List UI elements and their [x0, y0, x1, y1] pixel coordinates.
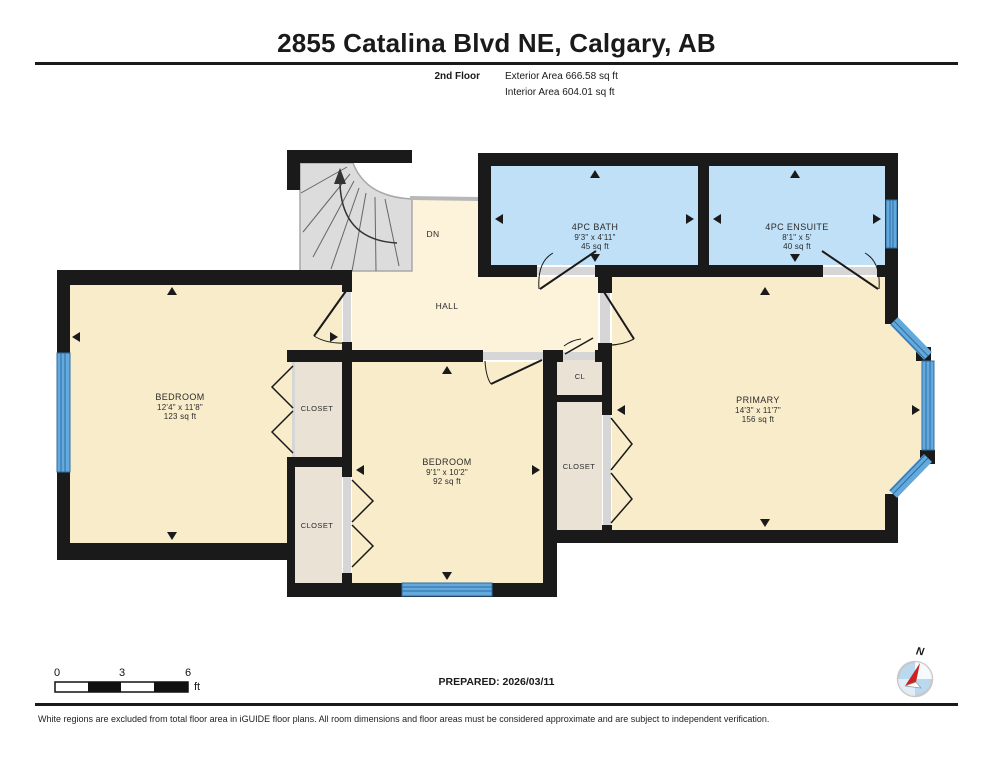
- disclaimer-text: White regions are excluded from total fl…: [38, 714, 958, 724]
- floor-plan-drawing: [0, 0, 993, 768]
- compass-north-label: N: [915, 646, 925, 659]
- bedroom-mid-label: BEDROOM 9'1" x 10'2" 92 sq ft: [422, 457, 471, 487]
- bedroom-left-label: BEDROOM 12'4" x 11'8" 123 sq ft: [155, 392, 204, 422]
- bath-label: 4PC BATH 9'3" x 4'11" 45 sq ft: [572, 222, 619, 252]
- primary-label: PRIMARY 14'3" x 11'7" 156 sq ft: [735, 395, 781, 425]
- stairs-rail-line: [410, 198, 478, 199]
- closet-bedroom-left-label: CLOSET: [301, 404, 333, 413]
- closet-small-label: CL: [575, 372, 585, 381]
- ensuite-label: 4PC ENSUITE 8'1" x 5' 40 sq ft: [765, 222, 828, 252]
- closet-primary-label: CLOSET: [563, 462, 595, 471]
- hall-label: HALL: [436, 301, 459, 311]
- stairs-dn-label: DN: [426, 229, 439, 239]
- footer-divider-line: [35, 703, 958, 706]
- prepared-date-text: PREPARED: 2026/03/11: [0, 676, 993, 688]
- bedroom-mid-window: [402, 583, 492, 596]
- closet-bedroom-mid-label: CLOSET: [301, 521, 333, 530]
- floor-plan-page: 2855 Catalina Blvd NE, Calgary, AB 2nd F…: [0, 0, 993, 768]
- bedroom-left-window: [57, 353, 70, 472]
- ensuite-window: [886, 200, 897, 248]
